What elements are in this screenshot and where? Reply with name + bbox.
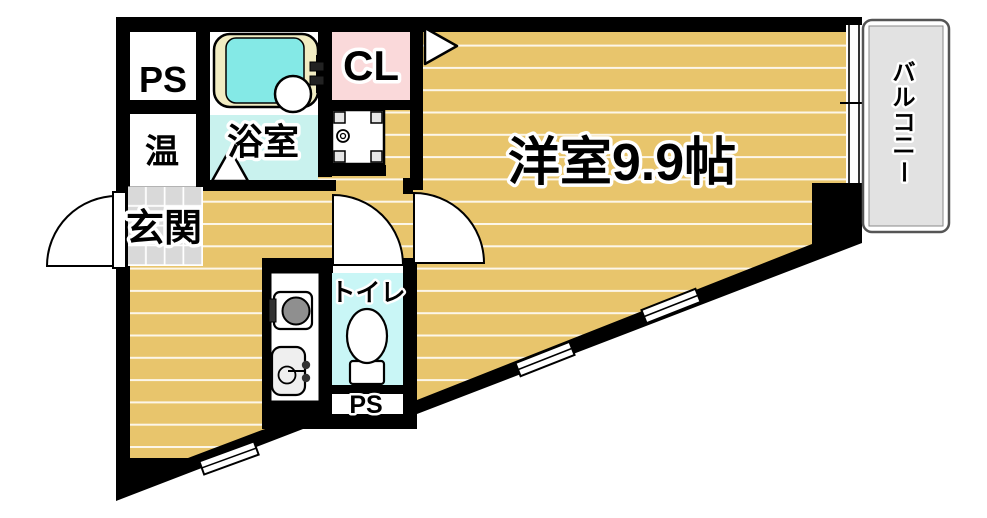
wall-ps-bath [196, 17, 210, 190]
washer-pan [332, 110, 384, 164]
label-bathroom: 浴室 [227, 121, 299, 162]
svg-text:ル: ル [893, 84, 916, 110]
bath-sink [275, 76, 311, 112]
faucet-handle-icon [302, 374, 310, 382]
stove-burner-icon [283, 298, 310, 325]
kitchen-sink [272, 347, 310, 395]
svg-text:ニ: ニ [893, 132, 916, 158]
stove [269, 292, 312, 329]
toilet-tank [350, 361, 384, 384]
floor-plan: PS 温 浴室 CL 洋室9.9帖 玄関 トイレ PS バ ル コ ニ ー [0, 0, 987, 518]
entrance-door [47, 192, 126, 268]
label-water-heater: 温 [145, 133, 179, 171]
wall-washer-south [318, 165, 386, 176]
svg-text:バ: バ [893, 59, 916, 85]
toilet-bowl [347, 309, 387, 363]
wall-door-post [403, 178, 413, 194]
wall-bath-closet [318, 17, 332, 177]
entrance-door-swing [47, 196, 117, 266]
toilet-fixture [347, 309, 387, 384]
label-ps-top: PS [139, 59, 187, 100]
svg-text:ー: ー [891, 161, 917, 184]
label-ps-bottom: PS [349, 391, 382, 419]
label-closet: CL [343, 42, 399, 89]
label-main-room: 洋室9.9帖 [508, 134, 736, 192]
label-balcony: バ ル コ ニ ー [891, 59, 917, 184]
wall-closet-south [318, 100, 423, 110]
label-toilet: トイレ [330, 279, 405, 307]
washer-drain-icon [337, 130, 349, 142]
wall-ps-divider [130, 100, 196, 114]
entrance-door-leaf [113, 192, 126, 268]
floor-plan-canvas: PS 温 浴室 CL 洋室9.9帖 玄関 トイレ PS バ ル コ ニ ー [0, 0, 987, 518]
faucet-handle-icon [302, 361, 310, 369]
label-entrance: 玄関 [126, 208, 202, 250]
bathtub [214, 34, 324, 112]
